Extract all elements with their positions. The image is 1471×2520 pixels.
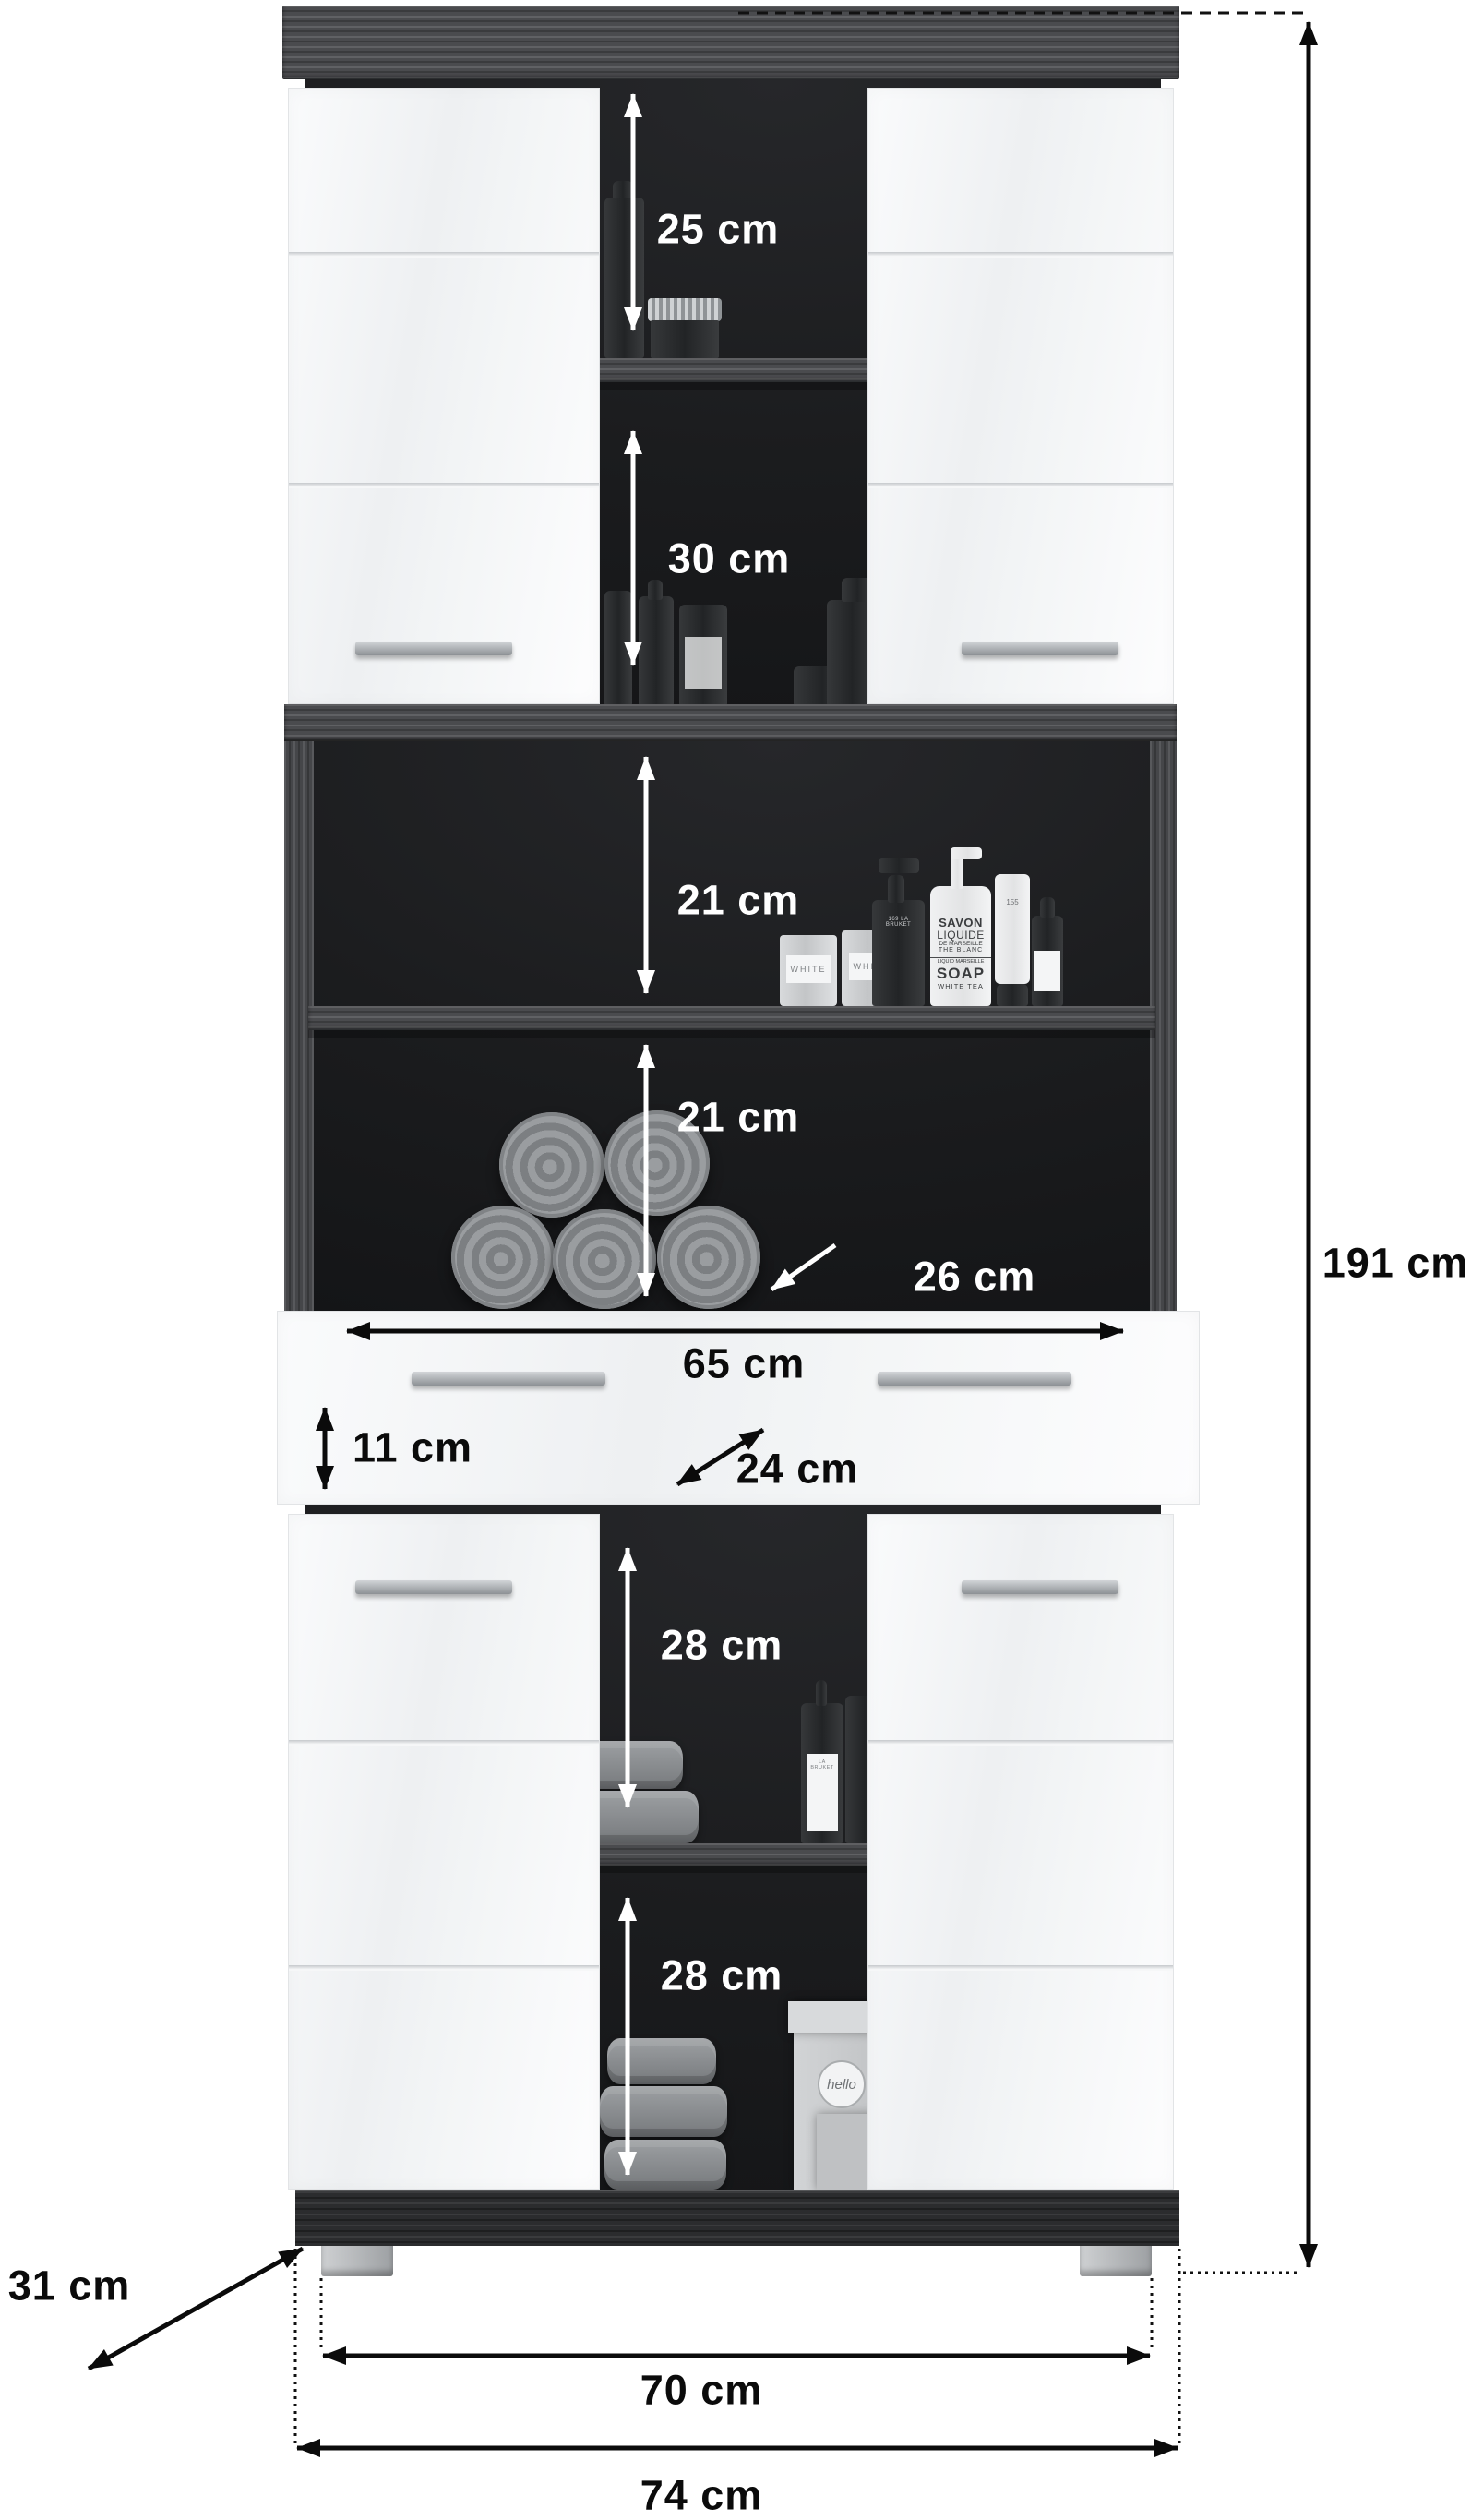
dimension-label-28cm-bottom: 28 cm bbox=[661, 1955, 783, 1997]
dimension-label-24cm: 24 cm bbox=[736, 1448, 859, 1490]
dimension-label-191cm: 191 cm bbox=[1322, 1242, 1469, 1284]
dimension-label-11cm: 11 cm bbox=[353, 1427, 472, 1469]
dimension-lines-overlay bbox=[0, 0, 1471, 2520]
dim-arrow-26cm bbox=[771, 1245, 835, 1290]
furniture-dimension-diagram: WHITE WHITE 169 LA BRUKET SAVON LIQUIDE … bbox=[0, 0, 1471, 2520]
dimension-label-65cm: 65 cm bbox=[683, 1343, 806, 1385]
dimension-label-26cm: 26 cm bbox=[914, 1256, 1036, 1298]
dimension-label-28cm-top: 28 cm bbox=[661, 1625, 783, 1666]
dimension-label-31cm: 31 cm bbox=[8, 2265, 131, 2307]
dimension-label-30cm: 30 cm bbox=[668, 538, 791, 580]
dimension-label-25cm: 25 cm bbox=[657, 209, 780, 250]
dimension-label-21cm-top: 21 cm bbox=[677, 880, 800, 921]
dimension-label-74cm: 74 cm bbox=[640, 2475, 763, 2516]
dimension-label-21cm-bottom: 21 cm bbox=[677, 1097, 800, 1138]
dimension-label-70cm: 70 cm bbox=[640, 2370, 763, 2411]
